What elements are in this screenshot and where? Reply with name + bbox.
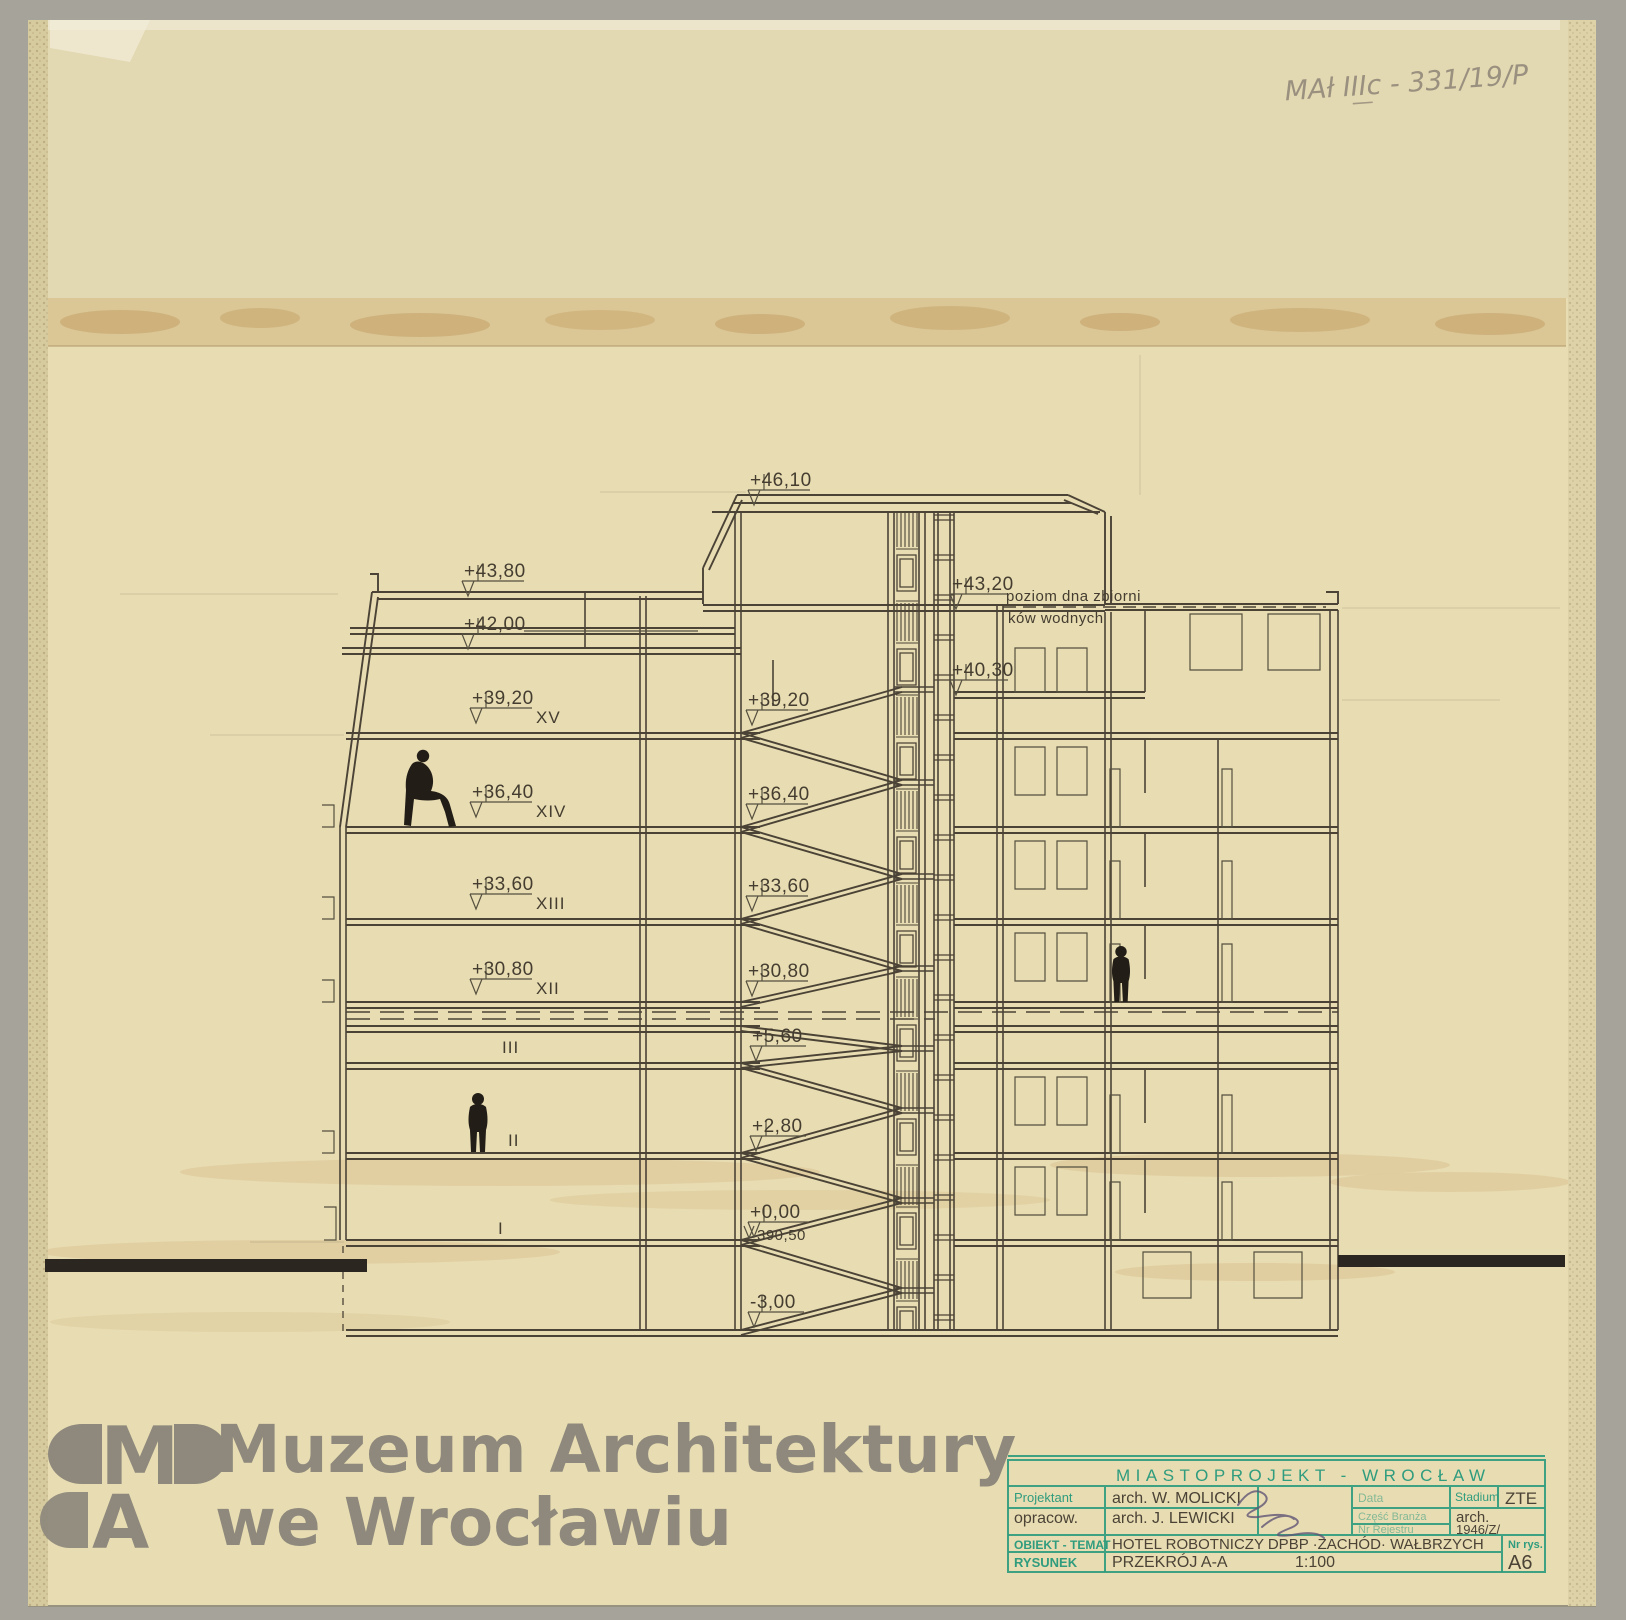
ground-bar-left <box>45 1259 367 1272</box>
logo-letter-a: A <box>92 1480 149 1566</box>
section-drawing-scan: +46,10 +43,80 +42,00 +39,20 XV +36,40 XI… <box>0 0 1626 1620</box>
nr-value: 1946/Z/ <box>1456 1522 1500 1537</box>
data-label: Data <box>1358 1491 1384 1505</box>
level-value: +39,20 <box>472 688 534 709</box>
floor-label-xv: XV <box>536 708 561 727</box>
level-value: +2,80 <box>752 1116 803 1137</box>
level-value: +0,00 <box>750 1202 801 1223</box>
floor-label-xiv: XIV <box>536 802 566 821</box>
tank-note-line1: poziom dna zbiorni <box>1006 588 1141 605</box>
level-value: -3,00 <box>750 1292 796 1313</box>
level-value: +36,40 <box>472 782 534 803</box>
tank-note-line2: ków wodnych <box>1008 610 1104 627</box>
level-value: +46,10 <box>750 470 812 491</box>
watermark-line1: Muzeum Architektury <box>215 1411 1016 1488</box>
scale-value: 1:100 <box>1295 1554 1335 1571</box>
watermark-line2: we Wrocławiu <box>215 1484 732 1561</box>
level-value: +33,60 <box>472 874 534 895</box>
floor-label-ii: II <box>508 1131 519 1150</box>
rysunek-value: PRZEKRÓJ A-A <box>1112 1552 1228 1571</box>
level-value: +43,80 <box>464 561 526 582</box>
nr-rys-value: A6 <box>1508 1552 1532 1574</box>
rysunek-label: RYSUNEK <box>1014 1555 1078 1570</box>
tape-band <box>45 298 1566 346</box>
stair-window-band <box>894 512 919 1330</box>
floor-label-xiii: XIII <box>536 894 566 913</box>
floor-label-i: I <box>498 1219 504 1238</box>
floor-label-iii: III <box>502 1038 519 1057</box>
opracow-label: opracow. <box>1014 1510 1078 1527</box>
level-value: +43,20 <box>952 574 1014 595</box>
level-value: +39,20 <box>748 690 810 711</box>
level-value: +40,30 <box>952 660 1014 681</box>
nr-rys-label: Nr rys. <box>1508 1539 1543 1551</box>
projektant-value: arch. W. MOLICKI <box>1112 1490 1241 1507</box>
level-value: +36,40 <box>748 784 810 805</box>
absolute-level: 390,50 <box>757 1227 806 1244</box>
scanned-drawing-sheet: +46,10 +43,80 +42,00 +39,20 XV +36,40 XI… <box>0 0 1626 1620</box>
stadium-value: ZTE <box>1505 1489 1537 1508</box>
service-duct <box>934 512 954 1330</box>
stamp-header: MIASTOPROJEKT - WROCŁAW <box>1116 1466 1491 1485</box>
nr-rejestru-label: Nr Rejestru <box>1358 1524 1414 1536</box>
level-value: +5,60 <box>752 1026 803 1047</box>
obiekt-label: OBIEKT - TEMAT <box>1014 1538 1111 1552</box>
opracow-value: arch. J. LEWICKI <box>1112 1510 1235 1527</box>
level-value: +30,80 <box>472 959 534 980</box>
level-value: +30,80 <box>748 961 810 982</box>
obiekt-value: HOTEL ROBOTNICZY DPBP ·ZACHÓD· WAŁBRZYCH <box>1112 1536 1484 1553</box>
level-value: +33,60 <box>748 876 810 897</box>
stadium-label: Stadium <box>1455 1490 1499 1504</box>
paper-background <box>28 20 1596 1606</box>
projektant-label: Projektant <box>1014 1490 1073 1505</box>
czesc-label: Część Branża <box>1358 1511 1427 1523</box>
level-value: +42,00 <box>464 614 526 635</box>
ground-bar-right <box>1338 1255 1565 1267</box>
floor-label-xii: XII <box>536 979 560 998</box>
